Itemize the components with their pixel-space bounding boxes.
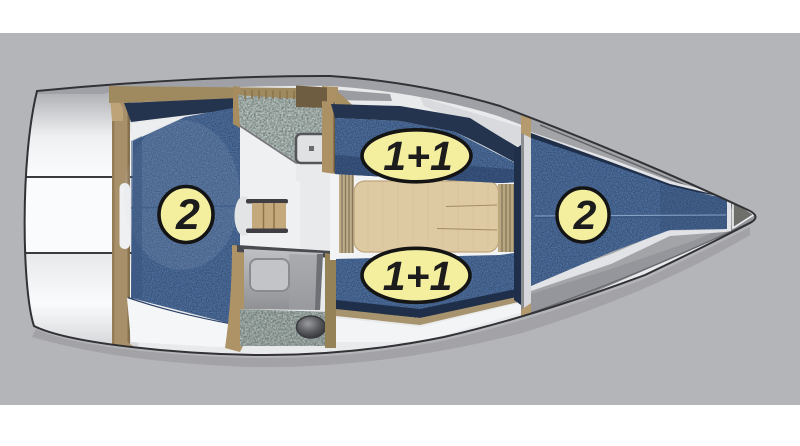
svg-text:2: 2	[175, 191, 200, 239]
svg-text:1+1: 1+1	[383, 253, 453, 299]
svg-text:1+1: 1+1	[383, 133, 453, 179]
svg-text:2: 2	[573, 192, 597, 238]
